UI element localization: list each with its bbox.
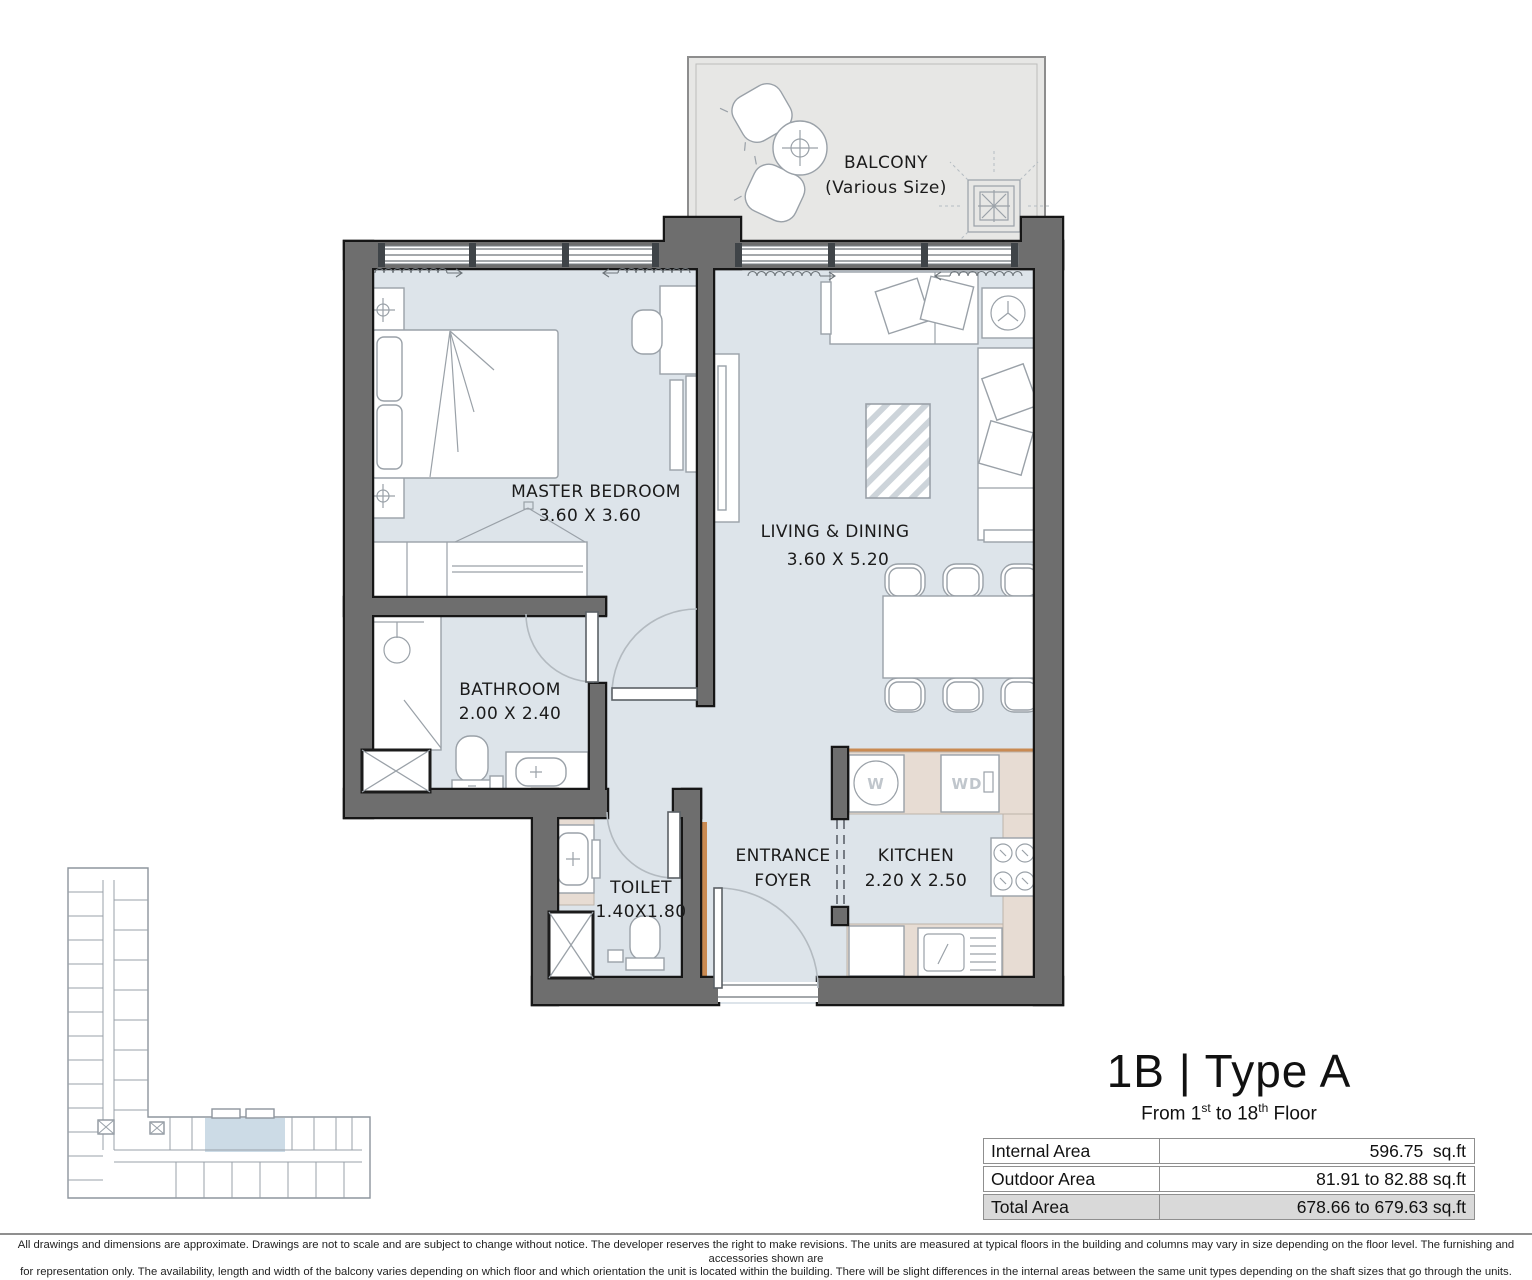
area-row-internal: Internal Area 596.75 sq.ft <box>983 1138 1475 1164</box>
room-label-foyer: FOYER <box>754 871 811 891</box>
fridge-icon <box>849 926 904 976</box>
area-value: 678.66 to 679.63 sq.ft <box>1160 1194 1475 1220</box>
desk-chair-icon <box>632 310 662 354</box>
room-label-entrance: ENTRANCE <box>735 846 830 866</box>
dining-table-icon <box>883 596 1035 678</box>
washer-label: W <box>867 775 885 793</box>
unit-title: 1B | Type A <box>983 1044 1475 1098</box>
area-label: Total Area <box>983 1194 1160 1220</box>
balcony-size-note: (Various Size) <box>825 178 947 198</box>
disclaimer-line1: All drawings and dimensions are approxim… <box>0 1239 1532 1266</box>
room-dims-living-dining: 3.60 X 5.20 <box>787 550 890 570</box>
title-block: 1B | Type A From 1st to 18th Floor Inter… <box>983 1044 1475 1220</box>
disclaimer: All drawings and dimensions are approxim… <box>0 1239 1532 1280</box>
shaft-icon <box>362 750 430 792</box>
room-dims-master-bedroom: 3.60 X 3.60 <box>539 506 642 526</box>
room-label-living-dining: LIVING & DINING <box>761 522 910 542</box>
floor-range-suffix: Floor <box>1268 1103 1317 1124</box>
sofa-icon <box>821 272 978 344</box>
side-table-lamp-icon <box>982 288 1034 338</box>
dishwasher-label: WD <box>952 775 983 793</box>
tv-unit-icon <box>713 354 739 522</box>
rug-icon <box>866 404 930 498</box>
disclaimer-line2: for representation only. The availabilit… <box>0 1266 1532 1280</box>
footer-divider <box>0 1233 1532 1235</box>
floor-range-mid: to 18 <box>1211 1103 1259 1124</box>
floor-range-sup2: th <box>1258 1101 1268 1115</box>
area-row-outdoor: Outdoor Area 81.91 to 82.88 sq.ft <box>983 1166 1475 1192</box>
kitchen-sink-icon <box>918 928 1002 977</box>
area-value: 596.75 sq.ft <box>1160 1138 1475 1164</box>
shaft-icon <box>549 912 593 978</box>
room-label-master-bedroom: MASTER BEDROOM <box>511 482 681 502</box>
area-label: Internal Area <box>983 1138 1160 1164</box>
room-label-kitchen: KITCHEN <box>878 846 954 866</box>
area-value: 81.91 to 82.88 sq.ft <box>1160 1166 1475 1192</box>
toilet-wc-icon <box>452 736 492 792</box>
room-label-bathroom: BATHROOM <box>459 680 561 700</box>
bed-icon <box>372 330 558 478</box>
floorplan-page: { "plan": { "balcony": { "name": "BALCON… <box>0 0 1532 1268</box>
key-plan <box>68 868 370 1198</box>
key-plan-highlight <box>205 1118 285 1152</box>
shower-icon <box>363 606 441 750</box>
balcony-table-icon <box>773 121 827 175</box>
floor-range-sup1: st <box>1201 1101 1210 1115</box>
floor-range: From 1st to 18th Floor <box>983 1101 1475 1125</box>
stove-icon <box>991 838 1035 896</box>
room-dims-toilet: 1.40X1.80 <box>596 902 687 922</box>
room-label-toilet: TOILET <box>609 878 672 898</box>
floor-range-prefix: From 1 <box>1141 1103 1201 1124</box>
balcony-label: BALCONY <box>844 153 928 173</box>
room-dims-bathroom: 2.00 X 2.40 <box>459 704 562 724</box>
area-label: Outdoor Area <box>983 1166 1160 1192</box>
room-dims-kitchen: 2.20 X 2.50 <box>865 871 968 891</box>
area-row-total: Total Area 678.66 to 679.63 sq.ft <box>983 1194 1475 1220</box>
area-table: Internal Area 596.75 sq.ft Outdoor Area … <box>983 1138 1475 1220</box>
